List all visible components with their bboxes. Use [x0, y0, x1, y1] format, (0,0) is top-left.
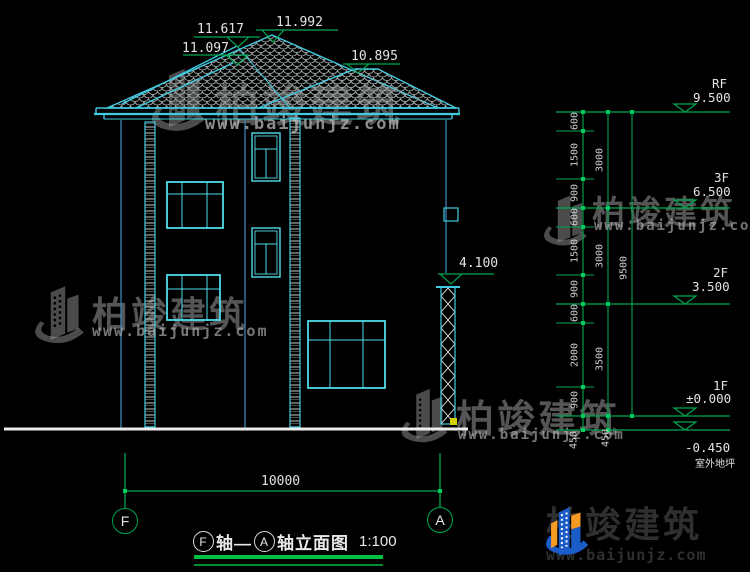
axis-bubble-f: F: [112, 508, 138, 534]
watermark-url-right: www.baijunjz.com: [594, 218, 750, 234]
windows: [167, 133, 385, 388]
brand-logo-block: 柏竣建筑 www.baijunjz.com: [540, 497, 707, 564]
dim-overall-height: 9500: [619, 256, 630, 280]
dim-inner-0: 600: [570, 112, 581, 130]
elevation-label-canopy: 4.100: [459, 256, 498, 271]
brand-logo-icon: [540, 497, 590, 559]
elevation-drawing: [0, 0, 750, 572]
dim-middle-0: 3000: [595, 148, 606, 172]
floor-value-2f: 3.500: [692, 279, 730, 294]
dim-middle-2: 3500: [595, 347, 606, 371]
dim-middle-3: 450: [601, 429, 612, 447]
elevation-label-right-ridge: 10.895: [351, 49, 398, 64]
columns: [145, 118, 460, 427]
window-3f-mid: [252, 133, 280, 181]
dim-inner-3: 600: [570, 208, 581, 226]
drawing-title: F 轴— A 轴立面图 1:100: [191, 529, 397, 554]
title-underline: [194, 557, 383, 565]
walls: [121, 118, 446, 428]
dim-inner-5: 900: [570, 280, 581, 298]
dim-inner-1: 1500: [570, 143, 581, 167]
dim-inner-4: 1500: [570, 239, 581, 263]
axis-letter-f: F: [121, 513, 130, 529]
window-2f-mid: [252, 228, 280, 277]
dim-inner-9: 450: [569, 431, 580, 449]
dim-inner-6: 600: [570, 304, 581, 322]
title-axis-f-bubble: F: [193, 531, 214, 552]
floor-value-3f: 6.500: [693, 184, 731, 199]
floor-level-lines: [556, 104, 730, 430]
watermark-url-top: www.baijunjz.com: [205, 114, 401, 134]
canopy-column: [441, 287, 455, 424]
axis-bubble-a: A: [427, 507, 453, 533]
dim-inner-2: 900: [570, 184, 581, 202]
floor-name-rf: RF: [712, 76, 727, 91]
window-3f-left: [167, 182, 223, 228]
grip-point: [450, 418, 457, 425]
floor-name-3f: 3F: [714, 170, 729, 185]
axis-letter-a: A: [435, 512, 444, 528]
cad-elevation-screenshot: 柏竣建筑 www.baijunjz.com 柏竣建筑 www.baijunjz.…: [0, 0, 750, 572]
title-axis-a-bubble: A: [254, 531, 275, 552]
elevation-label-peak: 11.992: [276, 15, 323, 30]
elevation-label-left-lower-ridge: 11.097: [182, 41, 229, 56]
window-1f-right: [308, 321, 385, 388]
dim-overall-width: 10000: [261, 474, 300, 489]
ground-level-label: 室外地坪: [695, 455, 735, 470]
window-2f-left: [167, 275, 220, 320]
dim-inner-7: 2000: [570, 343, 581, 367]
title-seg1: 轴—: [216, 529, 252, 554]
ground-level-value: -0.450: [685, 440, 730, 455]
title-seg2: 轴立面图: [277, 529, 349, 554]
floor-value-rf: 9.500: [693, 90, 731, 105]
roof: [94, 35, 460, 119]
elevation-label-left-ridge: 11.617: [197, 22, 244, 37]
dim-middle-1: 3000: [595, 244, 606, 268]
dim-inner-8: 900: [570, 391, 581, 409]
floor-value-1f: ±0.000: [686, 391, 731, 406]
floor-name-2f: 2F: [713, 265, 728, 280]
title-scale: 1:100: [359, 533, 397, 550]
watermark-url-left: www.baijunjz.com: [92, 322, 269, 340]
